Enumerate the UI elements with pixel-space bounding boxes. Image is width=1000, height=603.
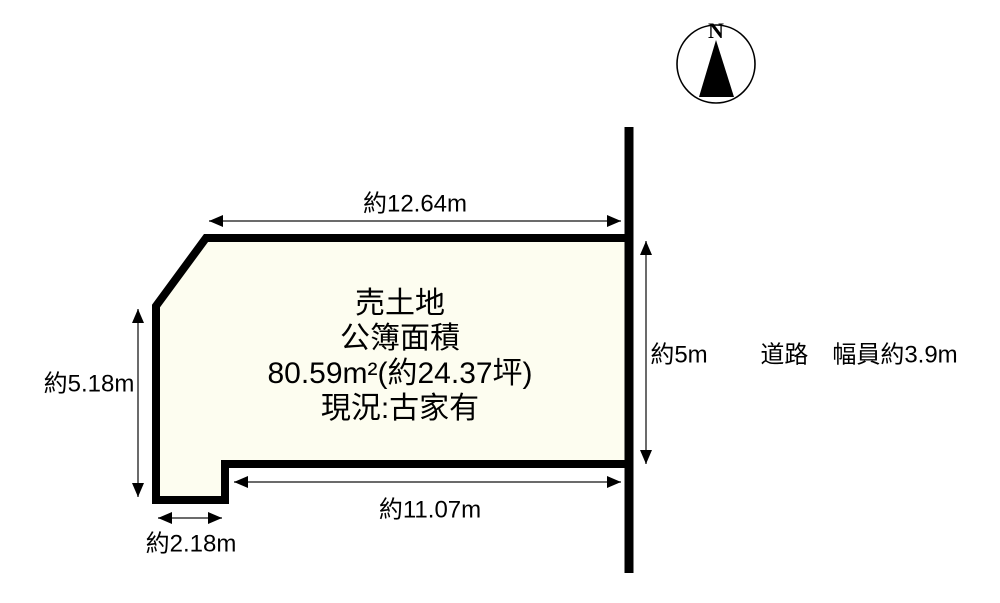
parcel-area-value: 80.59m²(約24.37坪) bbox=[267, 356, 532, 391]
parcel-area-heading: 公簿面積 bbox=[267, 321, 532, 356]
road-label: 道路 幅員約3.9m bbox=[760, 335, 957, 370]
land-plot-diagram: N 約12.64m 約5.18m 約11.07m 約2.18m 約5m 道路 幅… bbox=[0, 0, 1000, 603]
compass: N bbox=[677, 18, 755, 103]
dim-left-label: 約5.18m bbox=[44, 364, 135, 399]
parcel-title: 売土地 bbox=[267, 286, 532, 321]
dim-bottom-left-label: 約2.18m bbox=[146, 524, 237, 559]
parcel-status: 現況:古家有 bbox=[267, 391, 532, 426]
compass-north-label: N bbox=[708, 18, 724, 43]
dim-top-label: 約12.64m bbox=[363, 184, 467, 219]
parcel-info: 売土地 公簿面積 80.59m²(約24.37坪) 現況:古家有 bbox=[267, 286, 532, 426]
dim-bottom-label: 約11.07m bbox=[379, 490, 481, 525]
dim-right-label: 約5m bbox=[650, 335, 707, 370]
